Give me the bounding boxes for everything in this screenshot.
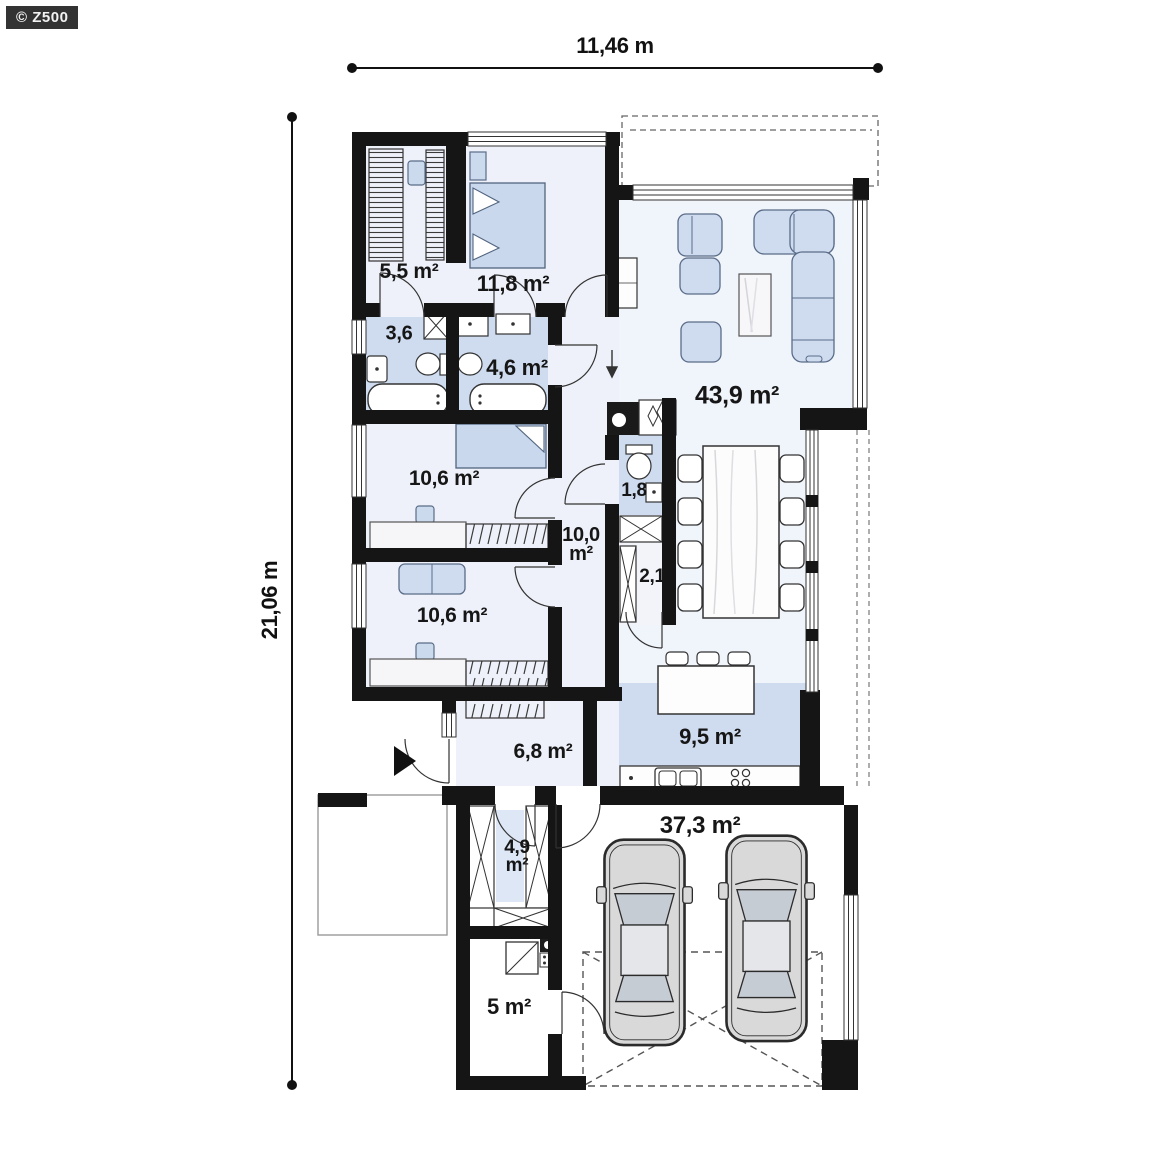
entry-porch-pad [318,795,447,935]
floor-plan-page: © Z500 11,46 m 21,06 m 5,5 m² 11,8 m² 3,… [0,0,1152,1152]
window-west-1 [352,320,366,354]
dining-table [703,446,779,618]
chair [408,161,425,185]
coffee-table [739,274,771,336]
armchair [678,214,722,256]
brand-watermark: © Z500 [6,6,78,29]
window-garage [844,895,858,1040]
roof-overhang-lines [857,430,869,790]
desk [370,659,466,686]
terrace [622,116,878,186]
wardrobe [466,524,548,550]
dimension-width-label: 11,46 m [576,33,653,59]
dimension-line-top [347,63,883,73]
chair [416,506,434,523]
car-left [597,840,693,1045]
window-east-dining [806,430,818,692]
entrance-arrow [394,746,416,776]
dimension-height-label: 21,06 m [257,561,283,640]
dimension-line-left [287,112,297,1090]
window-west-2 [352,425,366,497]
floor-plan-canvas [0,0,1152,1152]
chair [416,643,434,660]
toilet [416,353,440,375]
toilet [458,353,482,375]
car-right [719,836,815,1041]
window [468,132,606,146]
window-west-3 [352,564,366,628]
window-east-living [853,200,867,408]
kitchen-island [658,666,754,714]
wardrobe [466,661,548,686]
window-hall [442,713,456,737]
ottoman [681,322,721,362]
window-glazing-band [633,185,853,200]
desk [370,522,466,550]
